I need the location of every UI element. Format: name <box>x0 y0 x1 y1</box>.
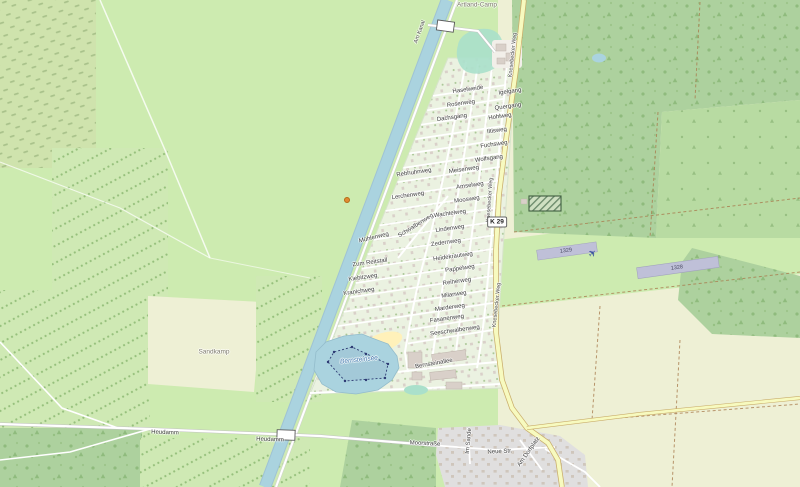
orchard-southwest <box>0 290 150 438</box>
fenced-compound <box>529 196 561 211</box>
scrub-northwest <box>0 0 96 168</box>
forest-northeast-light <box>656 100 800 238</box>
map-canvas[interactable]: Artland-CampHaselweideIgelgangRosenwegQu… <box>0 0 800 487</box>
forest-pond <box>592 54 606 63</box>
pitch-south <box>404 385 428 395</box>
forest-village-west <box>340 420 436 487</box>
route-shield-k29: K 29 <box>487 217 507 228</box>
map-base-layer <box>0 0 800 487</box>
field-sandkamp <box>148 296 262 392</box>
poi-marker <box>344 197 350 203</box>
orchard-south-mid <box>256 276 322 402</box>
